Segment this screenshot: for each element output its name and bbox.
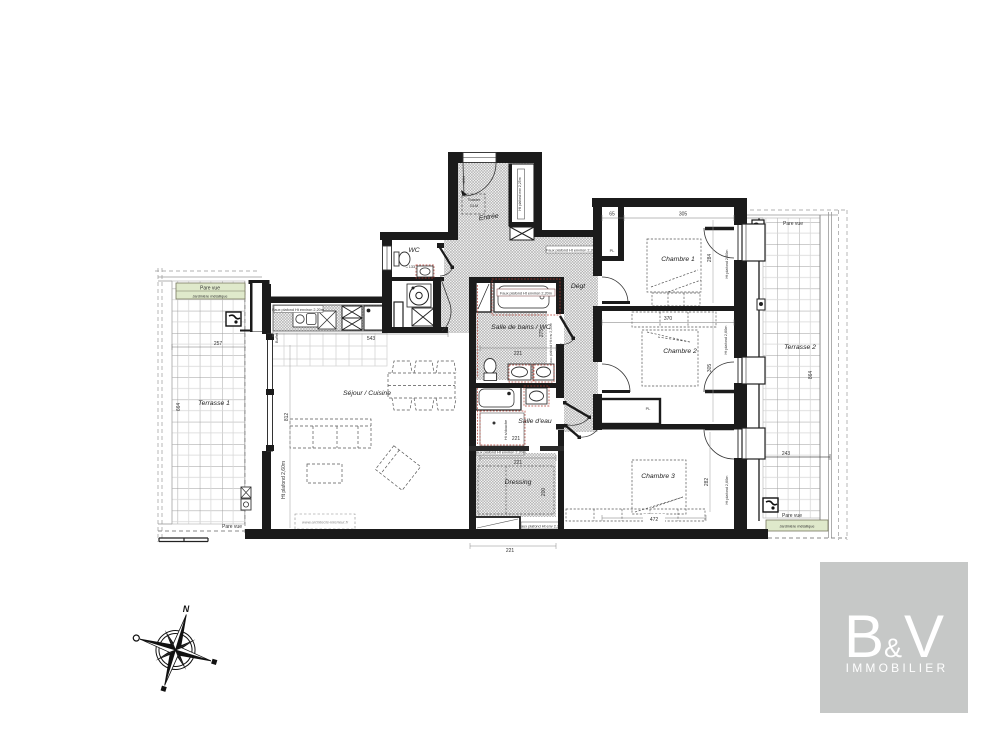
- svg-text:Pare vue: Pare vue: [200, 286, 220, 292]
- svg-text:864: 864: [808, 371, 814, 380]
- svg-text:812: 812: [284, 413, 290, 422]
- svg-text:Pare vue: Pare vue: [222, 524, 242, 530]
- svg-text:Buffet: Buffet: [275, 332, 279, 343]
- svg-text:65: 65: [609, 212, 615, 218]
- svg-text:221: 221: [514, 460, 523, 466]
- svg-text:243: 243: [782, 451, 791, 457]
- svg-text:Ht plafond 2,60m: Ht plafond 2,60m: [724, 326, 728, 355]
- svg-text:Faux plafond Ht environ 2,20m: Faux plafond Ht environ 2,20m: [546, 248, 598, 252]
- svg-text:Séjour / Cuisine: Séjour / Cuisine: [343, 390, 391, 397]
- svg-text:WC: WC: [408, 247, 419, 254]
- svg-text:Ht s/douche: Ht s/douche: [504, 420, 508, 440]
- svg-text:Toaster: Toaster: [468, 198, 481, 202]
- svg-text:Pare vue: Pare vue: [782, 513, 802, 519]
- svg-text:B: B: [844, 603, 884, 670]
- svg-text:&: &: [884, 633, 902, 663]
- svg-text:284: 284: [707, 254, 713, 263]
- svg-text:GLM: GLM: [470, 204, 478, 208]
- svg-text:Jardinière métallique: Jardinière métallique: [779, 525, 814, 529]
- svg-text:275: 275: [539, 329, 545, 338]
- svg-text:PL: PL: [646, 407, 651, 411]
- svg-text:472: 472: [650, 517, 659, 523]
- svg-text:221: 221: [512, 436, 521, 442]
- svg-text:IMMOBILIER: IMMOBILIER: [846, 661, 949, 675]
- svg-text:Faux plafond Ht environ 2,20m: Faux plafond Ht environ 2,20m: [272, 308, 324, 312]
- svg-text:Ht plafond env 2,25m: Ht plafond env 2,25m: [518, 177, 522, 210]
- svg-text:h204: h204: [462, 176, 466, 184]
- svg-text:282: 282: [704, 478, 710, 487]
- svg-text:Ht plafond 2,60m: Ht plafond 2,60m: [725, 476, 729, 505]
- svg-text:Ht plafond 2,60m: Ht plafond 2,60m: [725, 250, 729, 279]
- svg-text:Chambre 1: Chambre 1: [661, 256, 695, 263]
- svg-text:N: N: [183, 604, 190, 614]
- svg-text:221: 221: [514, 351, 523, 357]
- svg-text:V: V: [904, 603, 944, 670]
- svg-text:Terrasse 2: Terrasse 2: [784, 344, 816, 351]
- svg-text:Dressing: Dressing: [505, 479, 532, 486]
- svg-text:Salle d'eau: Salle d'eau: [518, 418, 552, 425]
- svg-text:Pare vue: Pare vue: [783, 221, 803, 227]
- svg-text:543: 543: [367, 336, 376, 342]
- svg-text:Dégt: Dégt: [571, 283, 586, 290]
- svg-text:Chambre 2: Chambre 2: [663, 348, 697, 355]
- svg-text:Ht plafond 2,60m: Ht plafond 2,60m: [281, 461, 287, 499]
- svg-text:370: 370: [664, 316, 673, 322]
- svg-text:221: 221: [506, 548, 515, 554]
- svg-text:PL: PL: [610, 249, 615, 253]
- svg-text:200: 200: [541, 488, 547, 497]
- svg-text:664: 664: [176, 403, 182, 412]
- svg-text:Chambre 3: Chambre 3: [641, 473, 675, 480]
- svg-text:Faux plafond Ht env 2,20m: Faux plafond Ht env 2,20m: [519, 524, 565, 528]
- svg-text:305: 305: [707, 364, 713, 373]
- svg-text:Terrasse 1: Terrasse 1: [198, 400, 230, 407]
- svg-text:Faux plafond Ht environ 2,20m: Faux plafond Ht environ 2,20m: [500, 291, 552, 295]
- svg-text:↔133: ↔133: [405, 265, 415, 269]
- svg-text:www.architecte-interieur.fr: www.architecte-interieur.fr: [302, 520, 349, 525]
- svg-text:305: 305: [679, 212, 688, 218]
- svg-text:Jardinière métallique: Jardinière métallique: [192, 295, 227, 299]
- svg-text:257: 257: [214, 341, 223, 347]
